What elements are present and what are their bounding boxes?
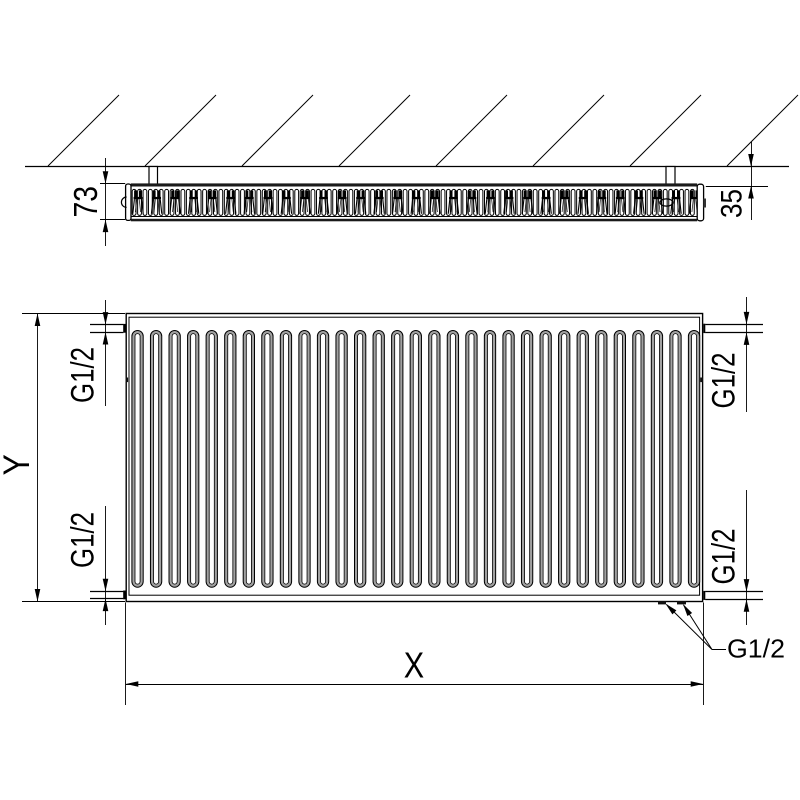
svg-text:73: 73: [67, 186, 104, 218]
svg-text:G1/2: G1/2: [727, 636, 785, 664]
svg-text:G1/2: G1/2: [706, 529, 742, 585]
svg-text:G1/2: G1/2: [65, 512, 101, 568]
svg-text:35: 35: [716, 189, 749, 218]
svg-text:X: X: [404, 645, 424, 686]
svg-text:G1/2: G1/2: [65, 347, 101, 403]
svg-text:G1/2: G1/2: [706, 353, 742, 409]
svg-text:Y: Y: [0, 454, 37, 475]
